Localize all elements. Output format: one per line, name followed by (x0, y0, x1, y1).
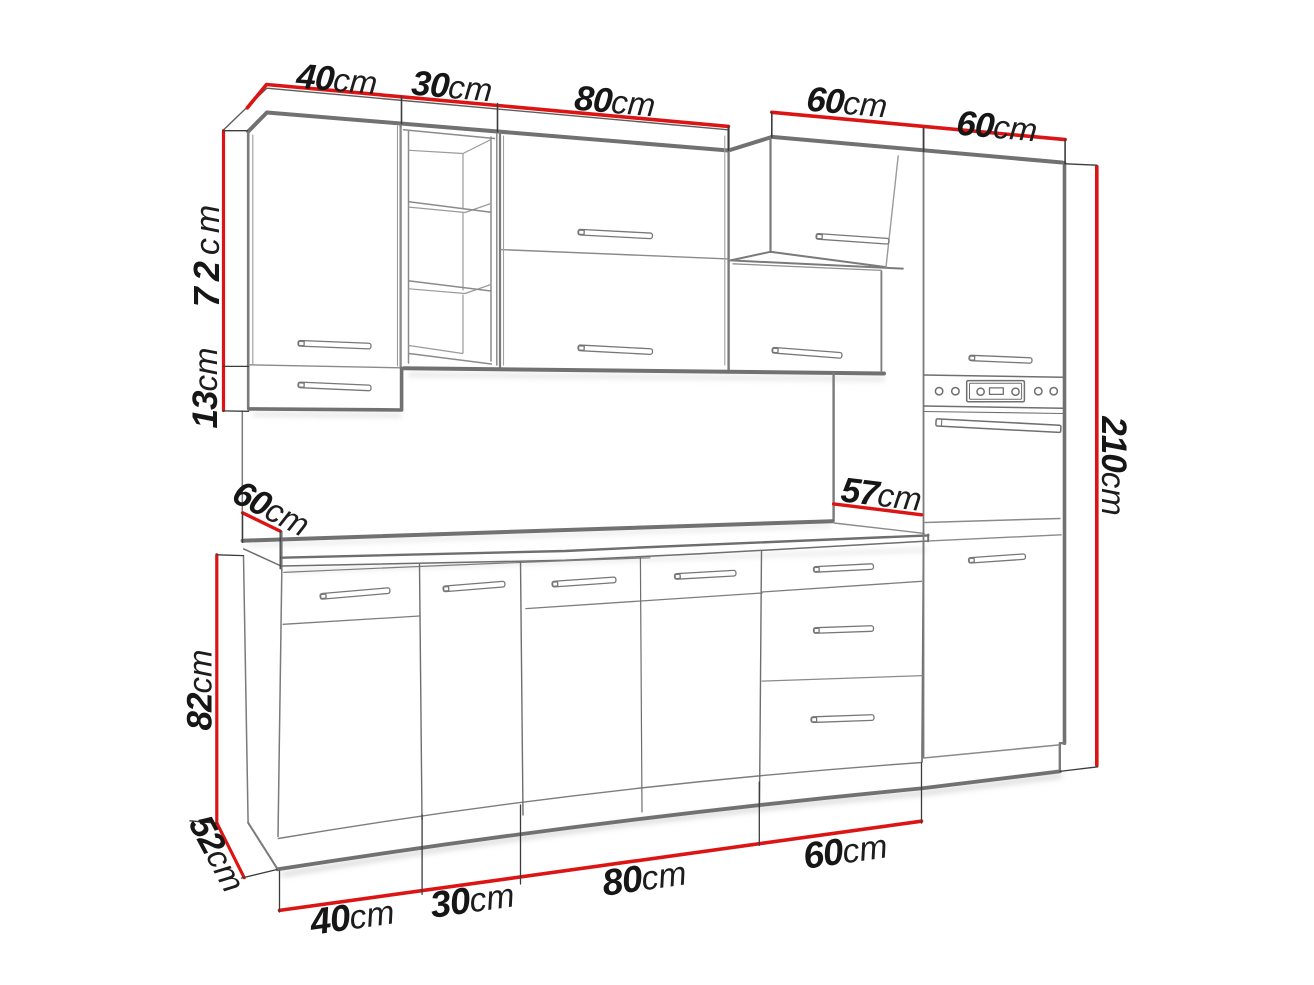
svg-text:72cm: 72cm (186, 200, 227, 307)
svg-text:80cm: 80cm (573, 79, 657, 125)
svg-text:30cm: 30cm (410, 64, 494, 110)
svg-text:40cm: 40cm (294, 57, 379, 103)
svg-text:82cm: 82cm (181, 650, 220, 731)
svg-text:60cm: 60cm (805, 80, 889, 126)
svg-text:210cm: 210cm (1094, 415, 1133, 515)
svg-text:60cm: 60cm (955, 104, 1039, 150)
svg-text:13cm: 13cm (186, 348, 225, 429)
